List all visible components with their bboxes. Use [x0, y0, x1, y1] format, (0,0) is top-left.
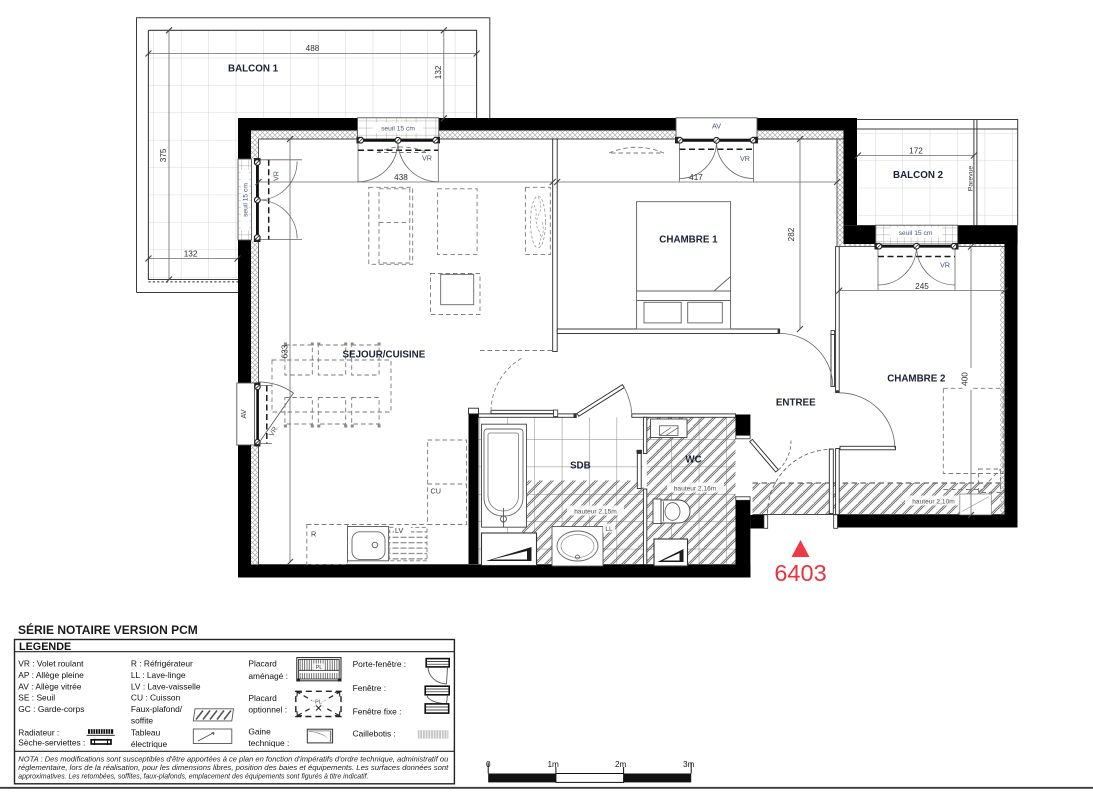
svg-text:VR: VR	[422, 154, 432, 163]
svg-text:172: 172	[909, 147, 923, 156]
svg-text:seuil 15 cm: seuil 15 cm	[899, 230, 933, 237]
svg-text:SEJOUR/CUISINE: SEJOUR/CUISINE	[343, 349, 426, 360]
svg-text:VR: VR	[740, 154, 750, 163]
svg-text:seuil 15 cm: seuil 15 cm	[242, 183, 249, 217]
svg-text:488: 488	[306, 44, 320, 53]
svg-text:GC : Garde-corps: GC : Garde-corps	[18, 704, 84, 714]
svg-text:282: 282	[787, 227, 796, 241]
svg-text:132: 132	[184, 249, 198, 258]
svg-text:CHAMBRE 2: CHAMBRE 2	[887, 373, 946, 384]
svg-text:2m: 2m	[615, 760, 627, 769]
svg-text:633: 633	[280, 344, 289, 358]
svg-text:Radiateur :: Radiateur :	[18, 728, 59, 738]
svg-text:Gaine: Gaine	[248, 727, 271, 737]
svg-text:400: 400	[960, 372, 969, 386]
svg-text:NOTA : Des modifications sont: NOTA : Des modifications sont susceptibl…	[18, 756, 448, 763]
svg-text:Placard: Placard	[248, 658, 277, 668]
svg-text:CHAMBRE 1: CHAMBRE 1	[659, 235, 718, 246]
svg-text:hauteur 2,16m: hauteur 2,16m	[674, 486, 717, 493]
svg-text:AP : Allège pleine: AP : Allège pleine	[18, 670, 84, 680]
svg-text:Fenêtre fixe :: Fenêtre fixe :	[353, 707, 402, 717]
svg-text:0: 0	[486, 760, 491, 769]
svg-text:réglementaire, lors de la réal: réglementaire, lors de la réalisation, p…	[18, 765, 449, 772]
svg-text:ENTREE: ENTREE	[776, 397, 816, 408]
svg-text:375: 375	[159, 148, 168, 162]
svg-text:Porte-fenêtre :: Porte-fenêtre :	[353, 659, 407, 669]
svg-text:3m: 3m	[683, 760, 695, 769]
svg-text:aménagé :: aménagé :	[248, 671, 288, 681]
svg-text:R : Réfrigérateur: R : Réfrigérateur	[131, 659, 193, 669]
svg-text:LEGENDE: LEGENDE	[19, 641, 71, 653]
svg-text:technique :: technique :	[248, 738, 289, 748]
svg-text:SDB: SDB	[570, 461, 591, 472]
svg-text:hauteur 2,15m: hauteur 2,15m	[574, 509, 617, 516]
svg-text:132: 132	[434, 65, 443, 79]
svg-text:LV: LV	[395, 526, 403, 535]
svg-text:seuil 15 cm: seuil 15 cm	[381, 126, 415, 133]
svg-text:Fenêtre :: Fenêtre :	[353, 683, 387, 693]
svg-text:CU : Cuisson: CU : Cuisson	[131, 693, 181, 703]
svg-text:LV : Lave-vaisselle: LV : Lave-vaisselle	[131, 681, 201, 691]
svg-text:VR : Volet roulant: VR : Volet roulant	[18, 659, 84, 669]
svg-text:Parevue: Parevue	[968, 166, 975, 192]
svg-text:PL: PL	[315, 700, 322, 706]
svg-text:Tableau: Tableau	[131, 728, 161, 738]
svg-text:électrique: électrique	[131, 739, 168, 749]
svg-text:BALCON 2: BALCON 2	[893, 170, 944, 181]
svg-text:245: 245	[915, 282, 929, 291]
svg-text:VR: VR	[272, 171, 281, 181]
svg-text:SÉRIE NOTAIRE VERSION PCM: SÉRIE NOTAIRE VERSION PCM	[18, 622, 198, 637]
svg-text:AV: AV	[712, 122, 721, 131]
svg-text:optionnel :: optionnel :	[248, 705, 287, 715]
svg-text:LL : Lave-linge: LL : Lave-linge	[131, 670, 186, 680]
svg-text:soffite: soffite	[131, 716, 154, 726]
svg-text:WC: WC	[685, 454, 701, 465]
svg-text:SE : Seuil: SE : Seuil	[18, 693, 55, 703]
svg-text:R: R	[311, 530, 316, 539]
svg-text:approximatives. Les retombées,: approximatives. Les retombées, soffites,…	[18, 773, 368, 780]
svg-text:AV : Allège vitrée: AV : Allège vitrée	[18, 681, 81, 691]
svg-text:417: 417	[689, 173, 703, 182]
svg-text:1m: 1m	[548, 760, 560, 769]
svg-text:Placard: Placard	[248, 693, 277, 703]
svg-text:CU: CU	[431, 487, 441, 496]
svg-text:438: 438	[394, 173, 408, 182]
svg-text:Faux-plafond/: Faux-plafond/	[131, 704, 183, 714]
svg-text:LL: LL	[605, 526, 613, 533]
svg-text:Sèche-serviettes :: Sèche-serviettes :	[18, 737, 85, 747]
svg-text:PL: PL	[316, 665, 323, 671]
svg-text:VR: VR	[940, 261, 950, 270]
svg-text:6403: 6403	[774, 560, 826, 586]
svg-text:Caillebotis :: Caillebotis :	[353, 729, 396, 739]
svg-text:hauteur 2,10m: hauteur 2,10m	[912, 499, 955, 506]
svg-text:BALCON 1: BALCON 1	[228, 63, 279, 74]
svg-text:AV: AV	[239, 409, 248, 418]
